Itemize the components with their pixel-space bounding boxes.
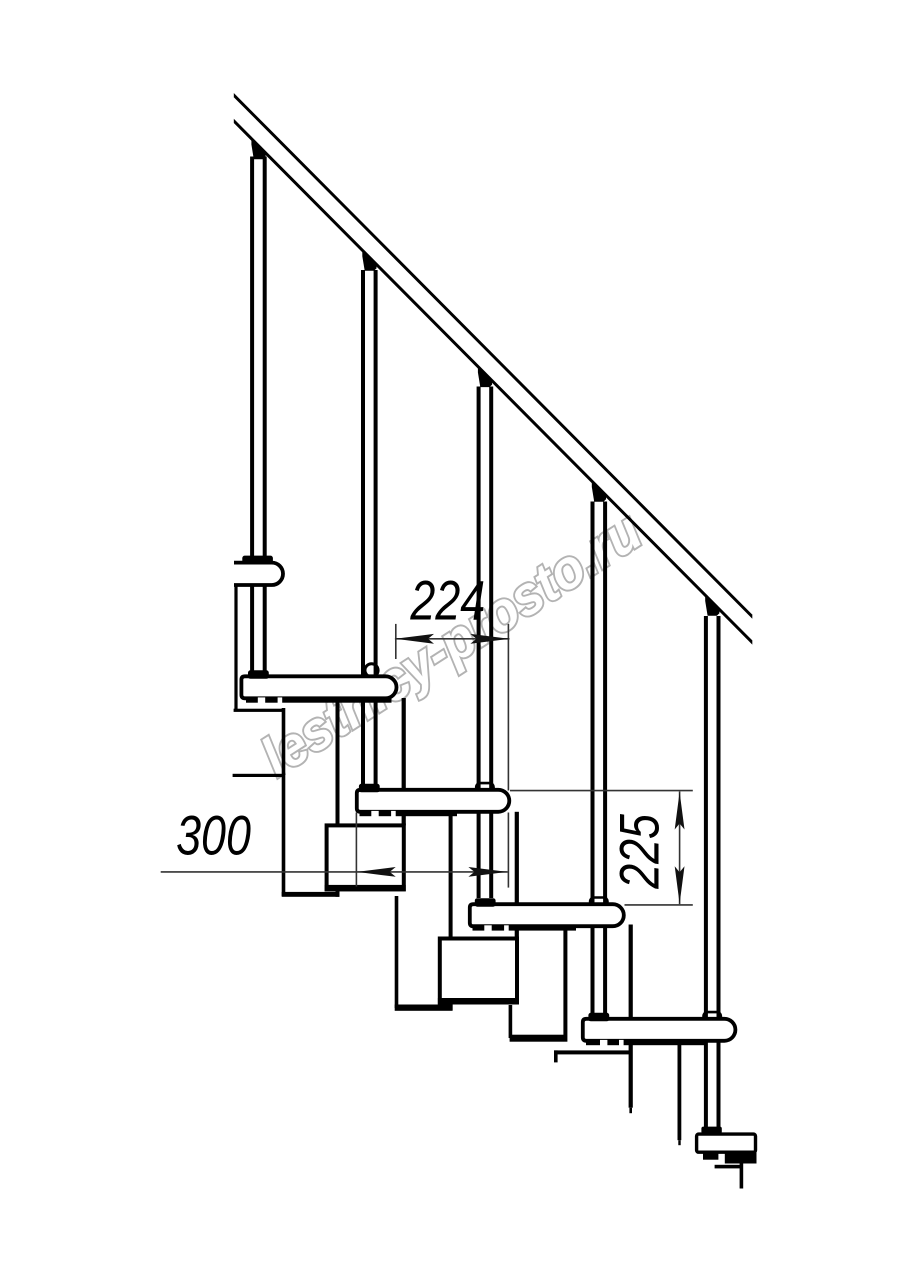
svg-text:300: 300: [176, 804, 251, 867]
svg-text:225: 225: [608, 813, 671, 889]
svg-text:224: 224: [410, 569, 486, 632]
